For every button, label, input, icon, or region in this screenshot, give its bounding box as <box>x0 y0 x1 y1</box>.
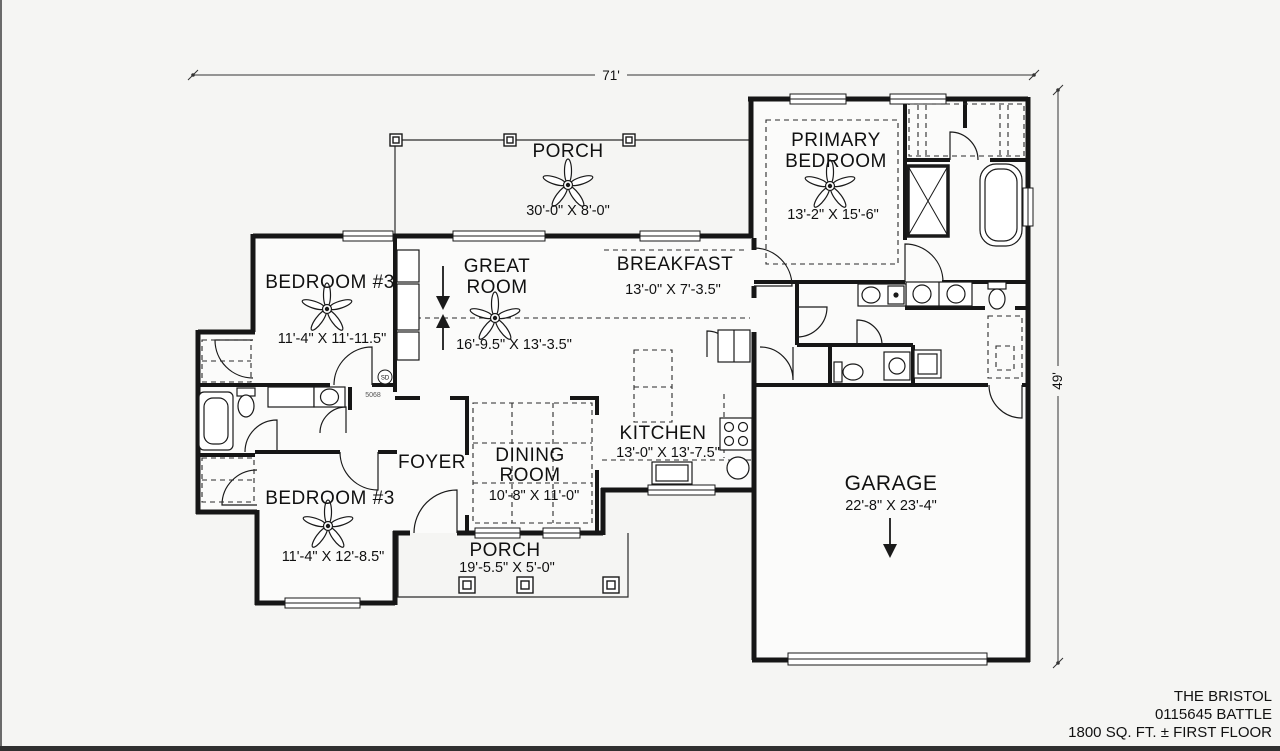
dishwasher-icon <box>652 462 692 484</box>
title-block: THE BRISTOL 0115645 BATTLE 1800 SQ. FT. … <box>1068 688 1272 741</box>
door-size-tag: 5068 <box>365 392 381 399</box>
double-vanity-icon <box>906 282 972 306</box>
ceiling-fan-icon <box>542 159 594 208</box>
plan-number: 0115645 BATTLE <box>1155 706 1272 723</box>
window <box>543 528 580 538</box>
toilet-icon <box>237 388 255 417</box>
porch-post <box>603 577 619 593</box>
refrigerator-icon <box>718 330 750 362</box>
room-label-garage: GARAGE <box>845 472 938 495</box>
dim-top-label: 71' <box>602 68 620 83</box>
dryer-icon <box>914 350 941 378</box>
window <box>343 231 393 241</box>
room-label-foyer: FOYER <box>398 452 466 473</box>
room-label-porch-top: PORCH <box>532 141 603 162</box>
smoke-detector-label: SD <box>381 376 390 382</box>
room-dims-bedroom3-top: 11'-4" X 11'-11.5" <box>278 331 387 347</box>
room-label-great-room: ROOM <box>466 277 527 298</box>
room-dims-garage: 22'-8" X 23'-4" <box>845 498 937 514</box>
bathtub-icon <box>199 392 233 450</box>
window-edge-left <box>0 0 2 751</box>
room-label-kitchen: KITCHEN <box>620 423 707 444</box>
shower-icon <box>908 166 948 236</box>
room-label-bedroom3-bottom: BEDROOM #3 <box>265 488 395 509</box>
toilet-icon <box>988 282 1006 309</box>
room-dims-dining-room: 10'-8" X 11'-0" <box>489 488 580 504</box>
window <box>1023 188 1033 226</box>
room-label-dining-room: DINING <box>495 445 565 466</box>
window <box>640 231 700 241</box>
dim-right-label: 49' <box>1050 372 1065 390</box>
room-dims-breakfast: 13'-0" X 7'-3.5" <box>625 282 721 298</box>
room-dims-primary-bedroom: 13'-2" X 15'-6" <box>787 207 879 223</box>
floor-plan-drawing: 71' 49' PORCH 30'-0" X 8'-0" PRIMARY BED… <box>0 0 1280 751</box>
room-label-breakfast: BREAKFAST <box>617 254 733 275</box>
room-dims-porch-bottom: 19'-5.5" X 5'-0" <box>459 560 555 576</box>
window <box>475 528 520 538</box>
porch-post <box>459 577 475 593</box>
room-dims-kitchen: 13'-0" X 13'-7.5" <box>616 445 720 461</box>
floor-plan-page: 71' 49' PORCH 30'-0" X 8'-0" PRIMARY BED… <box>0 0 1280 751</box>
room-label-primary-bedroom: PRIMARY <box>791 130 881 151</box>
room-dims-porch-top: 30'-0" X 8'-0" <box>526 203 610 219</box>
room-label-great-room: GREAT <box>464 256 531 277</box>
plan-area: 1800 SQ. FT. ± FIRST FLOOR <box>1068 724 1272 741</box>
room-label-primary-bedroom: BEDROOM <box>785 151 887 172</box>
built-in-cabinets <box>397 250 419 360</box>
garage-door <box>788 653 987 665</box>
porch-post <box>623 134 635 146</box>
powder-vanity-icon <box>858 284 906 306</box>
window <box>285 598 360 608</box>
window <box>648 485 715 495</box>
range-icon <box>720 418 752 450</box>
room-label-porch-bottom: PORCH <box>469 540 540 561</box>
room-label-dining-room: ROOM <box>499 465 560 486</box>
window <box>453 231 545 241</box>
porch-post <box>517 577 533 593</box>
toilet-icon <box>834 362 863 382</box>
room-dims-great-room: 16'-9.5" X 13'-3.5" <box>456 337 572 353</box>
window <box>890 94 946 104</box>
porch-post <box>390 134 402 146</box>
porch-post <box>504 134 516 146</box>
freestanding-tub-icon <box>980 164 1022 246</box>
kitchen-sink-icon <box>727 457 749 479</box>
room-label-bedroom3-top: BEDROOM #3 <box>265 272 395 293</box>
window-edge-bottom <box>0 746 1280 751</box>
vanity-sink-icon <box>268 387 345 407</box>
window <box>790 94 846 104</box>
room-dims-bedroom3-bottom: 11'-4" X 12'-8.5" <box>282 549 385 565</box>
washer-icon <box>884 352 910 380</box>
plan-name: THE BRISTOL <box>1174 688 1272 705</box>
